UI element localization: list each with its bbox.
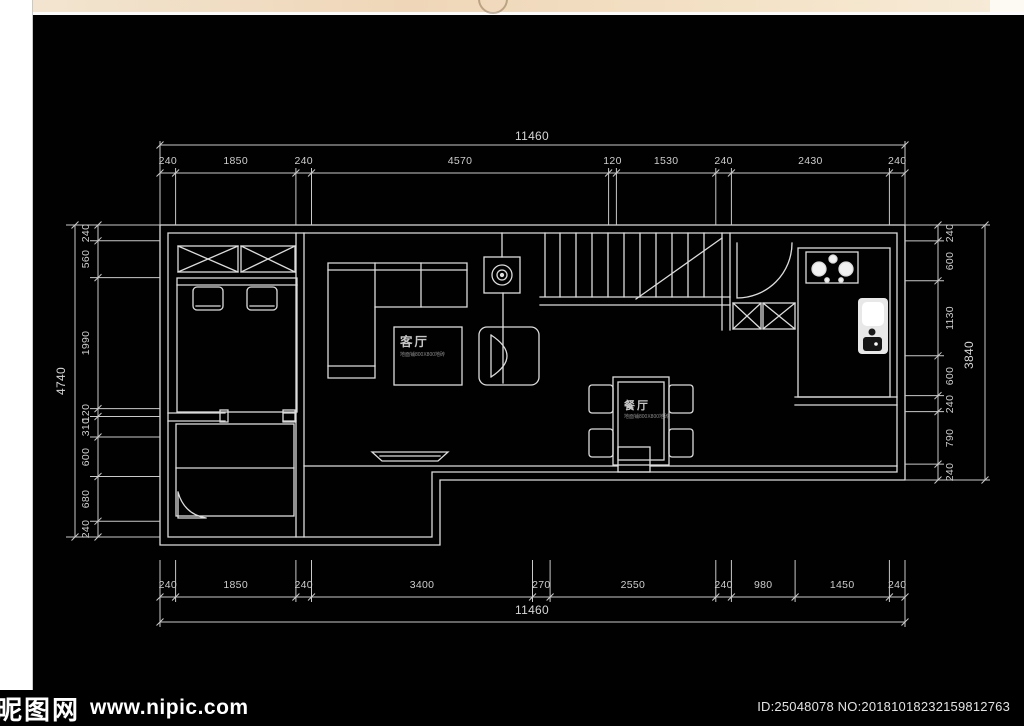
dimension-label: 120 [603, 155, 621, 167]
floorplan-canvas: 客厅 地面铺800X800地砖 餐厅 地面铺800X800地砖 11460240… [0, 0, 1024, 726]
dimension-label: 240 [944, 463, 956, 481]
living-room-label: 客厅 地面铺800X800地砖 [400, 336, 445, 358]
living-room-name: 客厅 [400, 336, 445, 350]
dimension-label: 1450 [830, 579, 855, 591]
dimension-label: 1530 [654, 155, 679, 167]
left-margin [0, 0, 33, 690]
dimension-label: 2550 [621, 579, 646, 591]
dimension-label: 240 [294, 579, 312, 591]
dimension-label: 240 [159, 579, 177, 591]
dimension-label: 240 [80, 520, 92, 538]
dimension-label: 4740 [54, 367, 68, 395]
dimension-label: 1990 [80, 331, 92, 356]
dimension-label: 3840 [962, 341, 976, 369]
dimension-label: 310 [80, 418, 92, 436]
dimension-label: 1130 [944, 306, 956, 330]
dimension-label: 1850 [223, 155, 248, 167]
top-right-corner [990, 0, 1024, 12]
dimension-label: 680 [80, 490, 92, 508]
dimension-label: 600 [944, 366, 956, 384]
dimension-label: 240 [944, 394, 956, 412]
dimension-label: 980 [754, 579, 772, 591]
dimension-label: 240 [159, 155, 177, 167]
dimension-label: 790 [944, 429, 956, 447]
dimension-label: 11460 [515, 603, 549, 617]
dimension-label: 240 [714, 155, 732, 167]
dimension-label: 240 [888, 155, 906, 167]
dining-room-label: 餐厅 地面铺800X800地砖 [624, 400, 669, 421]
dining-room-name: 餐厅 [624, 400, 669, 412]
dimension-label: 240 [944, 224, 956, 242]
dimension-label: 11460 [515, 129, 549, 143]
dimension-label: 600 [80, 448, 92, 466]
page: 客厅 地面铺800X800地砖 餐厅 地面铺800X800地砖 11460240… [0, 0, 1024, 726]
dimension-label: 240 [294, 155, 312, 167]
dining-room-note: 地面铺800X800地砖 [624, 415, 669, 421]
dimension-label: 1850 [223, 579, 248, 591]
dimension-label: 600 [944, 252, 956, 270]
dimension-label: 240 [888, 579, 906, 591]
footer-bar: 昵图网 www.nipic.com ID:25048078 NO:2018101… [0, 690, 1024, 726]
image-id-text: ID:25048078 NO:20181018232159812763 [757, 699, 1010, 714]
dimension-label: 240 [80, 224, 92, 242]
dimension-label: 240 [714, 579, 732, 591]
site-url-text: www.nipic.com [90, 696, 249, 720]
banner-logo-mark [478, 0, 508, 14]
site-logo-text: 昵图网 [0, 690, 80, 726]
dimension-label: 3400 [410, 579, 435, 591]
living-room-note: 地面铺800X800地砖 [400, 353, 445, 359]
dimension-label: 560 [80, 250, 92, 268]
dimension-label: 270 [532, 579, 550, 591]
dimension-label: 2430 [798, 155, 823, 167]
top-banner [0, 0, 1024, 15]
dimension-labels-layer: 客厅 地面铺800X800地砖 餐厅 地面铺800X800地砖 11460240… [0, 0, 1024, 726]
dimension-label: 4570 [448, 155, 473, 167]
